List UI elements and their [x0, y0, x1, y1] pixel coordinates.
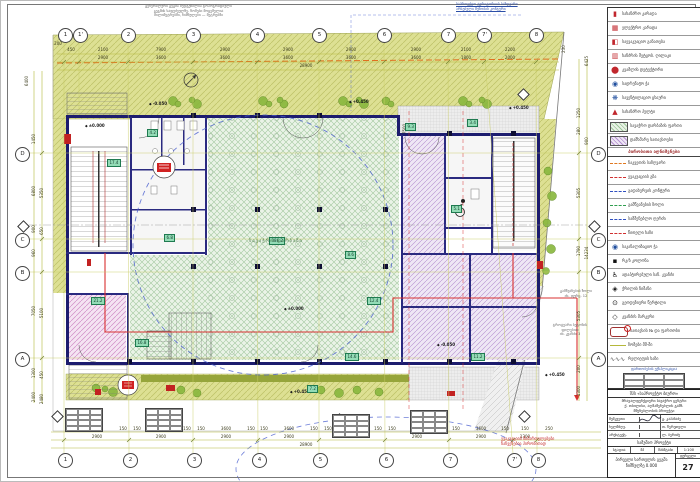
drawing-sheet: 11'2345677'812345677'8DCBADCBA 200450210… — [0, 0, 700, 482]
dimension-label: 2900 — [284, 435, 294, 439]
room-tag: 21.2 — [91, 297, 105, 305]
dimension-label: 28900 — [300, 443, 313, 447]
grid-bubble: 4 — [252, 453, 267, 468]
dimension-label: 900 — [32, 225, 36, 233]
room-tag: 14.6 — [345, 353, 359, 361]
grid-bubble: 5 — [313, 453, 328, 468]
dimension-label: 2900 — [412, 435, 422, 439]
line-sample-icon — [610, 205, 626, 206]
boundary-note: საპროექტო ტერიტორიის საზღვარიარსებული შე… — [456, 2, 591, 11]
grid-bubble: A — [591, 352, 606, 367]
dimension-label: 1790 — [577, 246, 581, 256]
grid-bubble: 2 — [121, 28, 136, 43]
legend-item-label: სახანძრო პულტი — [622, 110, 655, 115]
legend-line-item: წითელი ხაზი — [608, 227, 700, 241]
legend-symbol-item: ◇ კვანძის მარკერი — [608, 311, 700, 325]
dimension-label: 3600 — [220, 56, 230, 60]
dimension-label: 2900 — [156, 435, 166, 439]
dimension-label: 2200 — [505, 48, 515, 52]
legend-item-label: საკანალიზაციო ჭა — [622, 245, 658, 250]
dimension-label: 230 — [562, 45, 566, 53]
dimension-sample-icon — [610, 345, 626, 346]
dimension-label: 150 — [260, 427, 268, 431]
schedule-table — [145, 408, 183, 432]
legend-equipment-icon: ⬤ — [610, 67, 620, 74]
dimension-label: 2900 — [476, 435, 486, 439]
dimension-label: 2100 — [461, 48, 471, 52]
meta-row: სტადია მპ მასშტაბი 1:100 — [608, 447, 700, 454]
legend-item-label: წითელი ხაზი — [628, 231, 653, 236]
dimension-label: 5100 — [40, 308, 44, 318]
legend-item: ▲ სახანძრო პულტი — [608, 106, 700, 120]
legend-symbol-item: ⊙ გეოდეზიური წერტილი — [608, 297, 700, 311]
legend-item-label: სამშენებლო ღერძი — [628, 217, 666, 222]
legend-item-label: გამწვანების ზოლი — [628, 203, 664, 208]
grid-bubble: 7' — [507, 453, 522, 468]
legend-line-item: ევაკუაციის გზა — [608, 171, 700, 185]
legend-item-label: სახანძრო კარადა — [622, 12, 657, 17]
dimension-label: 200 — [54, 42, 62, 46]
grid-bubble: B — [15, 266, 30, 281]
legend-hatch-green: სავაჭრო დარბაზის ფართი — [608, 120, 700, 134]
room-tag: 17.4 — [107, 159, 121, 167]
level-marker: ±0.000 — [284, 307, 304, 312]
legend-symbol-icon: ⊙ — [610, 300, 620, 307]
sheet-number: 27 — [682, 463, 693, 472]
legend-panel: ▮ სახანძრო კარადა ▦ ელექტრო კარადა ◧ საე… — [607, 7, 700, 389]
dimension-label: 2480 — [40, 394, 44, 404]
room-tag-sample-icon — [610, 327, 628, 337]
grid-bubble: 6 — [379, 453, 394, 468]
room-tag: 4.2 — [147, 129, 158, 137]
dimension-label: 150 — [197, 427, 205, 431]
dimension-label: 2900 — [98, 56, 108, 60]
legend-line-item: ნაკვეთის საზღვარი — [608, 157, 700, 171]
level-marker: -0.050 — [437, 343, 455, 348]
legend-item-label: სავაჭრო დარბაზის ფართი — [630, 124, 682, 129]
sheet-number-label: ფურცელი — [676, 454, 700, 459]
legend-item: ❋ სავენტილაციო ცხაური — [608, 92, 700, 106]
dimension-label: 6425 — [585, 56, 589, 66]
level-marker: +0.450 — [349, 100, 369, 105]
grid-bubble: 3 — [186, 28, 201, 43]
dimension-label: 1250 — [577, 108, 581, 118]
room-tag: 7.2 — [307, 385, 318, 393]
signature-role: შემკვეთი — [608, 417, 640, 421]
grid-bubble: 8 — [531, 453, 546, 468]
legend-equipment-icon: ◉ — [610, 81, 620, 88]
red-note: ევაკუაციის მიმართულებებინაჩვენებია პირობ… — [501, 436, 601, 446]
grid-bubble: D — [591, 147, 606, 162]
legend-header: პირობითი აღნიშვნები — [608, 148, 700, 157]
legend-hatch-purple: დამხმარე სათავსოები — [608, 134, 700, 148]
grid-bubble: 7' — [477, 28, 492, 43]
legend-wavy: ∿∿∿ რელიეფის ხაზი — [608, 353, 700, 367]
legend-symbol-icon: ♿ — [610, 272, 620, 279]
signature-name: თ. წერეთელი — [661, 425, 700, 429]
dimension-label: 1450 — [32, 134, 36, 144]
dimension-label: 280 — [577, 127, 581, 135]
room-tag: 16.8 — [135, 339, 149, 347]
legend-equipment-icon: ▦ — [610, 25, 620, 32]
legend-symbol-item: ♿ ადაპტირებული სან. კვანძი — [608, 269, 700, 283]
room-tag: 5.1 — [451, 205, 462, 213]
dimension-label: 450 — [40, 371, 44, 379]
grid-bubble: 2 — [123, 453, 138, 468]
schedule-table — [410, 410, 448, 434]
signature-role: ხელმძღვ. — [608, 425, 640, 429]
dimension-label: 3600 — [284, 427, 294, 431]
meta-cell: მპ — [631, 447, 654, 453]
sheet-number-box: ფურცელი 27 — [675, 454, 700, 477]
dimension-label: 1800 — [461, 56, 471, 60]
dimension-label: 2900 — [283, 48, 293, 52]
dimension-label: 3600 — [411, 56, 421, 60]
title-block: შპს «საპროექტო ბიურო» მრავალფუნქციური სა… — [607, 389, 700, 478]
grid-bubble: C — [591, 233, 606, 248]
signature-row: არქიტექტ. ლ. ბერიძე — [608, 431, 700, 439]
legend-table-caption: ფართობების ექსპლიკაცია — [608, 367, 700, 371]
legend-item-label: ნაკვეთის საზღვარი — [628, 161, 665, 166]
legend-item-label: ადაპტირებული სან. კვანძი — [622, 273, 674, 278]
legend-symbol-icon: ▪ — [610, 258, 620, 265]
dimension-label: 3600 — [156, 56, 166, 60]
dimension-label: 250 — [545, 427, 553, 431]
grid-bubble: 7 — [443, 453, 458, 468]
dimension-label: 2900 — [346, 48, 356, 52]
legend-item-label: სავენტილაციო ცხაური — [622, 96, 666, 101]
note-line: ნაჩვენებია პირობითად — [501, 441, 601, 446]
dimension-label: 650 — [40, 227, 44, 235]
dimension-label: 2100 — [98, 48, 108, 52]
dimension-label: 7050 — [32, 306, 36, 316]
legend-item-label: რკ/ბ კოლონა — [622, 259, 649, 264]
legend-item-label: ევაკუაციის გზა — [628, 175, 656, 180]
dimension-label: 5305 — [577, 188, 581, 198]
note-line: იხ. კვანძი 3 — [541, 332, 599, 337]
legend-equipment-icon: ▮ — [610, 11, 620, 18]
dimension-label: 3600 — [346, 56, 356, 60]
legend-equipment-icon: ◧ — [610, 39, 620, 46]
dimension-label: 3600 — [476, 427, 486, 431]
meta-cell: 1:100 — [678, 447, 700, 453]
line-sample-icon — [610, 163, 626, 164]
dimension-label: 2900 — [220, 48, 230, 52]
dimension-label: 6400 — [25, 76, 29, 86]
legend-symbol-item: ▪ რკ/ბ კოლონა — [608, 255, 700, 269]
legend-symbol-item: ◈ ჭრილის ნიშანი — [608, 283, 700, 297]
dimension-label: 150 — [521, 427, 529, 431]
dimension-label: 2900 — [221, 435, 231, 439]
legend-item: ⬤ კვამლის დეტექტორი — [608, 64, 700, 78]
legend-item-label: გეოდეზიური წერტილი — [622, 301, 666, 306]
schedule-table — [332, 414, 370, 438]
legend-item-label: დამხმარე სათავსოები — [630, 138, 673, 143]
dimension-label: 900 — [585, 137, 589, 145]
legend-item-label: ზომები მმ-ში — [628, 343, 652, 348]
grid-bubble: B — [591, 266, 606, 281]
dimension-label: 150 — [310, 427, 318, 431]
side-note-1: გამწვანების ზოლიიხ. ფურც. 12 — [551, 289, 601, 298]
wavy-line-icon: ∿∿∿ — [610, 358, 626, 361]
signature-cell — [640, 431, 661, 438]
legend-item: ▦ ელექტრო კარადა — [608, 22, 700, 36]
dimension-label: 3600 — [283, 56, 293, 60]
grid-bubble: 5 — [312, 28, 327, 43]
legend-item-label: რელიეფის ხაზი — [628, 357, 659, 362]
legend-line-item: სამშენებლო ღერძი — [608, 213, 700, 227]
schedule-table — [65, 408, 103, 432]
legend-equipment-icon: ❋ — [610, 95, 620, 102]
legend-item-label: ჭრილის ნიშანი — [622, 287, 651, 292]
dimension-label: 14234 — [585, 247, 589, 260]
grid-bubble: D — [15, 147, 30, 162]
signature-role: არქიტექტ. — [608, 433, 640, 437]
dimension-label: 5350 — [40, 188, 44, 198]
legend-symbol-icon: ◈ — [610, 286, 620, 293]
grid-bubble: 1 — [58, 453, 73, 468]
dimension-label: 2400 — [32, 392, 36, 402]
grid-bubble: A — [15, 352, 30, 367]
level-marker: -0.050 — [149, 102, 167, 107]
legend-equipment-icon: ▥ — [610, 53, 620, 60]
legend-item: ◧ საევაკუაციო განათება — [608, 36, 700, 50]
line-sample-icon — [610, 177, 626, 178]
green-hatch-icon — [610, 122, 628, 132]
side-note-2: ტროტუარი ბეტონისფილებითიხ. კვანძი 3 — [541, 323, 599, 337]
room-tag: 9.3 — [405, 123, 416, 131]
dimension-label: 960 — [32, 249, 36, 257]
legend-line-item: გადახურვის კონტური — [608, 185, 700, 199]
dimension-label: 150 — [388, 427, 396, 431]
level-marker: +0.450 — [545, 373, 565, 378]
legend-item-label: გადახურვის კონტური — [628, 189, 670, 194]
project-stage: სამუშაო პროექტი — [608, 439, 700, 447]
legend-item-label: კვანძის მარკერი — [622, 315, 654, 320]
legend-item-label: სათავსის № და ფართობი — [630, 329, 680, 334]
signature-scribble — [637, 413, 663, 427]
legend-equipment-icon: ▲ — [610, 109, 620, 116]
level-marker: ±0.000 — [85, 124, 105, 129]
dimension-label: 150 — [183, 427, 191, 431]
dimension-label: 2000 — [505, 56, 515, 60]
purple-hatch-icon — [610, 136, 628, 146]
sheet-title: პირველი სართულის გეგმანიშნულზე 0.000 — [608, 454, 675, 477]
dimension-label: 3600 — [221, 427, 231, 431]
signature-name: ლ. ბერიძე — [661, 433, 700, 437]
general-note: გენერალური გეგმა შედგენილია ტოპოგრაფიული… — [106, 4, 271, 18]
dimension-label: 150 — [374, 427, 382, 431]
sheet-title-line: ნიშნულზე 0.000 — [608, 463, 675, 469]
legend-item-label: ხანძრის შეტყობ. ღილაკი — [622, 54, 671, 59]
legend-symbol-icon: ◉ — [610, 244, 620, 251]
dimension-label: 150 — [324, 427, 332, 431]
dimension-label: 150 — [247, 427, 255, 431]
grid-bubble: 8 — [529, 28, 544, 43]
dimension-label: 2900 — [411, 48, 421, 52]
legend-line-item: გამწვანების ზოლი — [608, 199, 700, 213]
dimension-label: 150 — [133, 427, 141, 431]
dimension-label: 1300 — [577, 386, 581, 396]
line-sample-icon — [610, 219, 626, 220]
line-sample-icon — [610, 191, 626, 192]
meta-cell: სტადია — [608, 447, 631, 453]
legend-item: ▮ სახანძრო კარადა — [608, 8, 700, 22]
title-bottom: პირველი სართულის გეგმანიშნულზე 0.000 ფურ… — [608, 454, 700, 477]
dimension-label: 150 — [119, 427, 127, 431]
level-marker: +0.450 — [509, 106, 529, 111]
dimension-label: 7900 — [156, 48, 166, 52]
note-line: არსებული შენობის კონტური — [456, 7, 591, 12]
dimension-label: 28900 — [300, 64, 313, 68]
note-line: მილიმეტრებში, ნიშნულები — მეტრებში — [106, 13, 271, 18]
legend-tag-sample: სათავსის № და ფართობი — [608, 325, 700, 339]
grid-bubble: 6 — [377, 28, 392, 43]
company-name: შპს «საპროექტო ბიურო» — [608, 390, 700, 398]
dimension-label: 5305 — [577, 311, 581, 321]
dimension-label: 150 — [501, 427, 509, 431]
legend-symbol-icon: ◇ — [610, 314, 620, 321]
grid-bubble: 1' — [73, 28, 88, 43]
signature-name: გ. კაპანაძე — [661, 417, 700, 421]
legend-item-label: საევაკუაციო განათება — [622, 40, 665, 45]
meta-cell: მასშტაბი — [655, 447, 678, 453]
dimension-label: 6800 — [32, 186, 36, 196]
dimension-label: 1300 — [32, 368, 36, 378]
grid-bubble: 4 — [250, 28, 265, 43]
room-tag: 12.4 — [367, 297, 381, 305]
legend-item-label: ელექტრო კარადა — [622, 26, 657, 31]
legend-item: ◉ სადრენაჟო ჭა — [608, 78, 700, 92]
room-tag: 6.8 — [164, 234, 175, 242]
legend-dim-sample: ზომები მმ-ში — [608, 339, 700, 353]
dimension-label: 150 — [452, 427, 460, 431]
room-tag: 3.4 — [467, 119, 478, 127]
legend-symbol-item: ◉ საკანალიზაციო ჭა — [608, 241, 700, 255]
legend-item-label: კვამლის დეტექტორი — [622, 68, 663, 73]
legend-item: ▥ ხანძრის შეტყობ. ღილაკი — [608, 50, 700, 64]
grid-bubble: 7 — [441, 28, 456, 43]
line-sample-icon — [610, 233, 626, 234]
dimension-label: 450 — [67, 48, 75, 52]
room-tag: 8.6 — [345, 251, 356, 259]
legend-item-label: სადრენაჟო ჭა — [622, 82, 649, 87]
grid-bubble: 3 — [187, 453, 202, 468]
note-line: იხ. ფურც. 12 — [551, 294, 601, 299]
room-tag: 11.2 — [471, 353, 485, 361]
grid-bubble: C — [15, 233, 30, 248]
dimension-label: 2900 — [92, 435, 102, 439]
hall-label: სავაჭრო დარბაზი — [249, 239, 303, 244]
dimension-label: 200 — [577, 365, 581, 373]
